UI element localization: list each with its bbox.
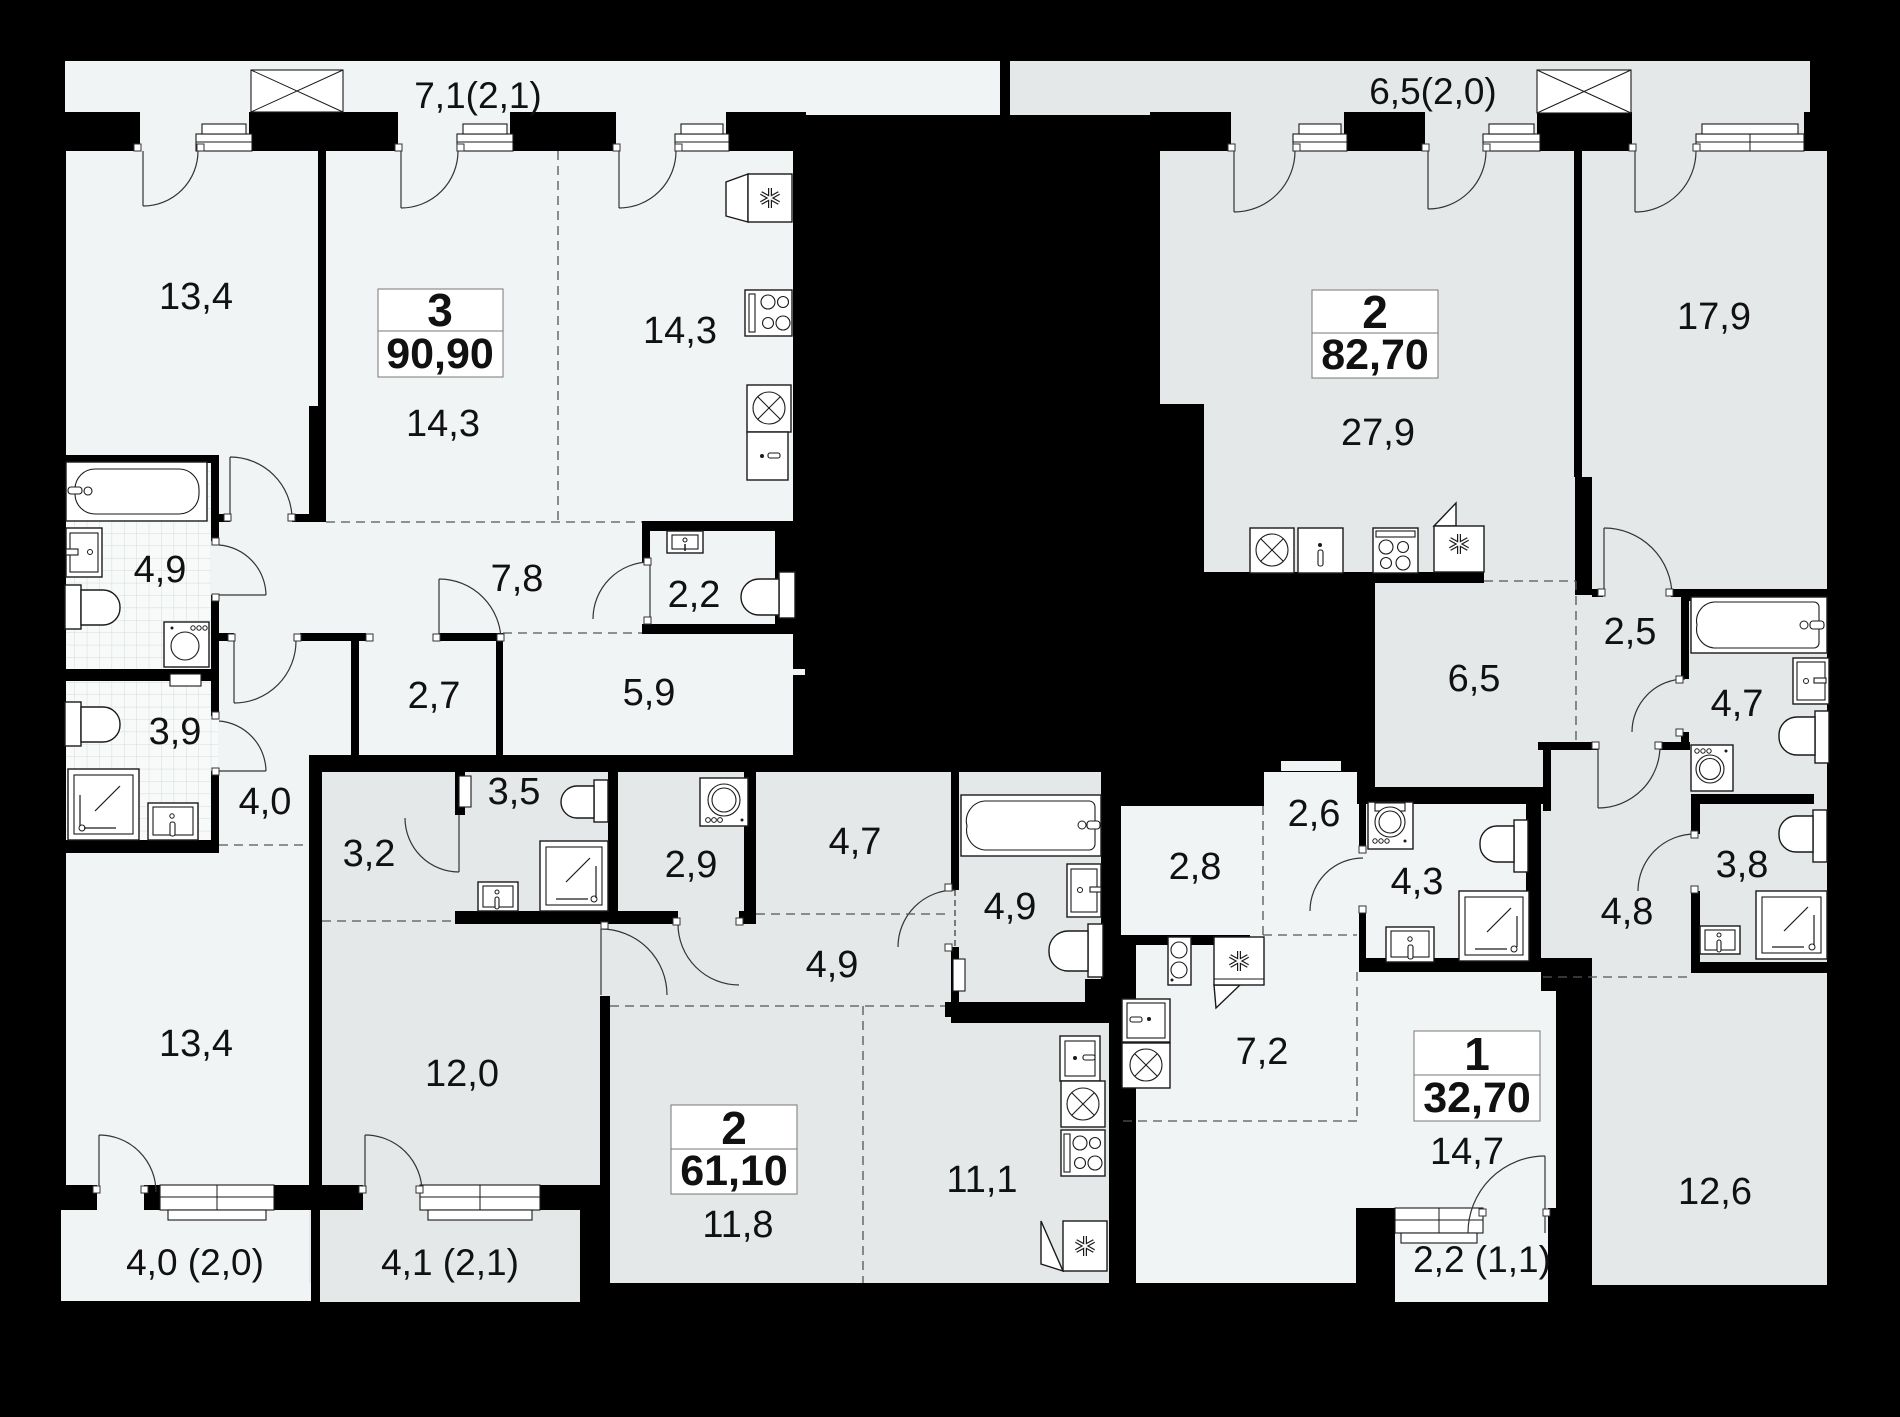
svg-text:6,5: 6,5 <box>1448 658 1501 700</box>
svg-text:2,8: 2,8 <box>1169 846 1222 888</box>
svg-text:12,6: 12,6 <box>1678 1171 1752 1213</box>
svg-text:2,2 (1,1): 2,2 (1,1) <box>1413 1239 1551 1280</box>
svg-text:90,90: 90,90 <box>386 330 494 378</box>
svg-text:82,70: 82,70 <box>1321 331 1429 379</box>
svg-text:27,9: 27,9 <box>1341 412 1415 454</box>
svg-text:13,4: 13,4 <box>159 276 233 318</box>
svg-text:2,2: 2,2 <box>668 574 721 616</box>
svg-text:32,70: 32,70 <box>1423 1074 1531 1122</box>
svg-text:61,10: 61,10 <box>680 1147 788 1195</box>
svg-text:4,7: 4,7 <box>1711 683 1764 725</box>
svg-text:4,1 (2,1): 4,1 (2,1) <box>381 1242 519 1283</box>
svg-text:7,1(2,1): 7,1(2,1) <box>414 75 542 116</box>
svg-text:4,9: 4,9 <box>984 886 1037 928</box>
svg-text:14,7: 14,7 <box>1430 1131 1504 1173</box>
svg-text:7,8: 7,8 <box>491 558 544 600</box>
svg-text:3,9: 3,9 <box>149 711 202 753</box>
svg-text:2,9: 2,9 <box>665 844 718 886</box>
svg-text:2,7: 2,7 <box>408 675 461 717</box>
svg-text:3,2: 3,2 <box>343 833 396 875</box>
svg-text:4,9: 4,9 <box>134 549 187 591</box>
svg-text:4,0: 4,0 <box>239 781 292 823</box>
svg-text:4,3: 4,3 <box>1391 861 1444 903</box>
svg-text:11,1: 11,1 <box>946 1159 1017 1201</box>
svg-text:3: 3 <box>427 284 453 336</box>
svg-text:4,9: 4,9 <box>806 944 859 986</box>
svg-text:6,5(2,0): 6,5(2,0) <box>1369 71 1497 112</box>
svg-text:4,7: 4,7 <box>829 821 882 863</box>
svg-text:5,9: 5,9 <box>623 672 676 714</box>
svg-text:11,8: 11,8 <box>702 1204 773 1246</box>
svg-text:13,4: 13,4 <box>159 1023 233 1065</box>
svg-text:3,5: 3,5 <box>488 771 541 813</box>
svg-text:7,2: 7,2 <box>1236 1031 1289 1073</box>
svg-text:2,6: 2,6 <box>1288 793 1341 835</box>
svg-text:3,8: 3,8 <box>1716 844 1769 886</box>
svg-text:17,9: 17,9 <box>1677 296 1751 338</box>
svg-text:12,0: 12,0 <box>425 1053 499 1095</box>
svg-text:14,3: 14,3 <box>643 310 717 352</box>
svg-text:4,8: 4,8 <box>1601 891 1654 933</box>
svg-text:14,3: 14,3 <box>406 403 480 445</box>
svg-text:4,0 (2,0): 4,0 (2,0) <box>126 1242 264 1283</box>
svg-text:1: 1 <box>1464 1028 1490 1080</box>
svg-text:2,5: 2,5 <box>1604 611 1657 653</box>
